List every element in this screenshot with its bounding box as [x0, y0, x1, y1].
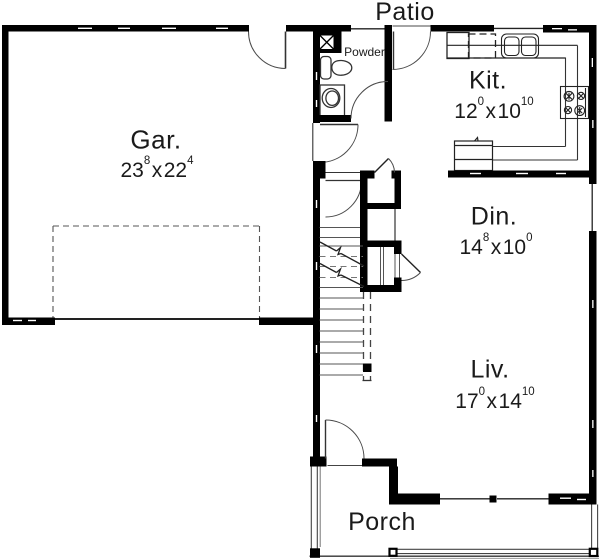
- svg-text:Din.: Din.: [471, 203, 517, 231]
- svg-text:Liv.: Liv.: [470, 356, 509, 384]
- svg-text:Patio: Patio: [375, 0, 434, 26]
- svg-text:Kit.: Kit.: [469, 67, 507, 95]
- svg-text:238x224: 238x224: [120, 155, 194, 182]
- svg-text:Powder: Powder: [344, 45, 385, 59]
- svg-text:Gar.: Gar.: [130, 125, 181, 155]
- svg-text:148x100: 148x100: [459, 232, 532, 259]
- svg-text:Porch: Porch: [348, 508, 416, 536]
